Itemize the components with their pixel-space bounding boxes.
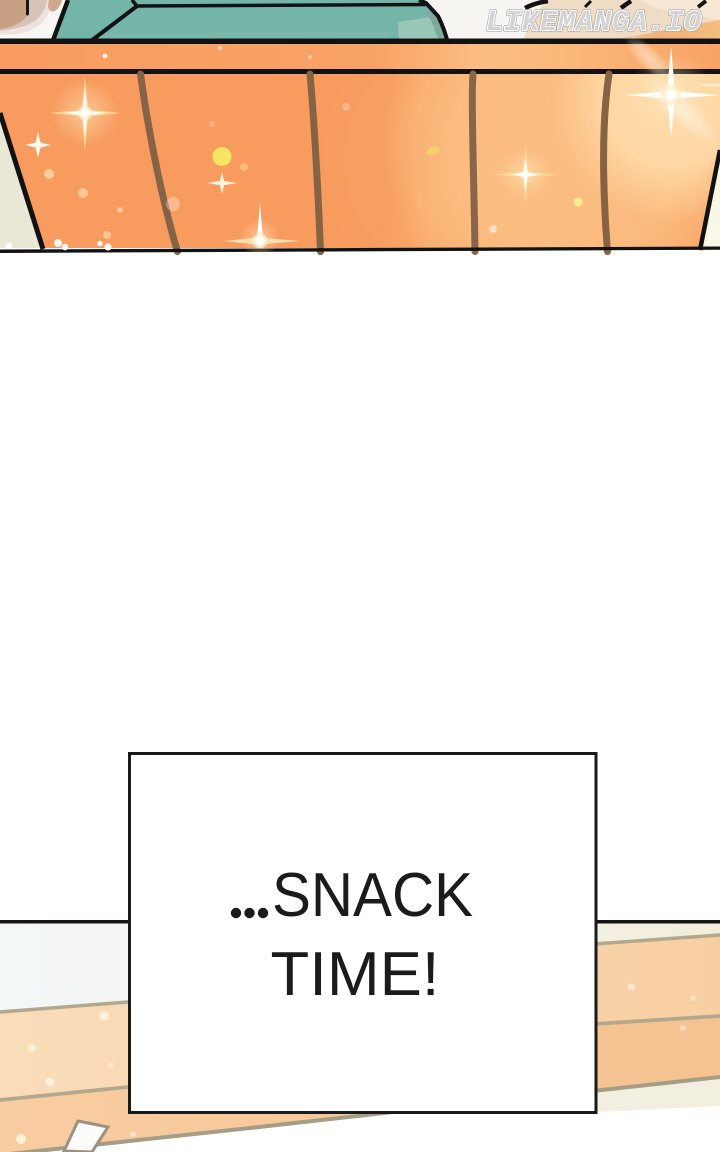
svg-text:LIKEMANGA.IO: LIKEMANGA.IO <box>486 6 702 39</box>
svg-text:TIME!: TIME! <box>271 940 440 1009</box>
svg-text:SNACK: SNACK <box>272 861 473 930</box>
